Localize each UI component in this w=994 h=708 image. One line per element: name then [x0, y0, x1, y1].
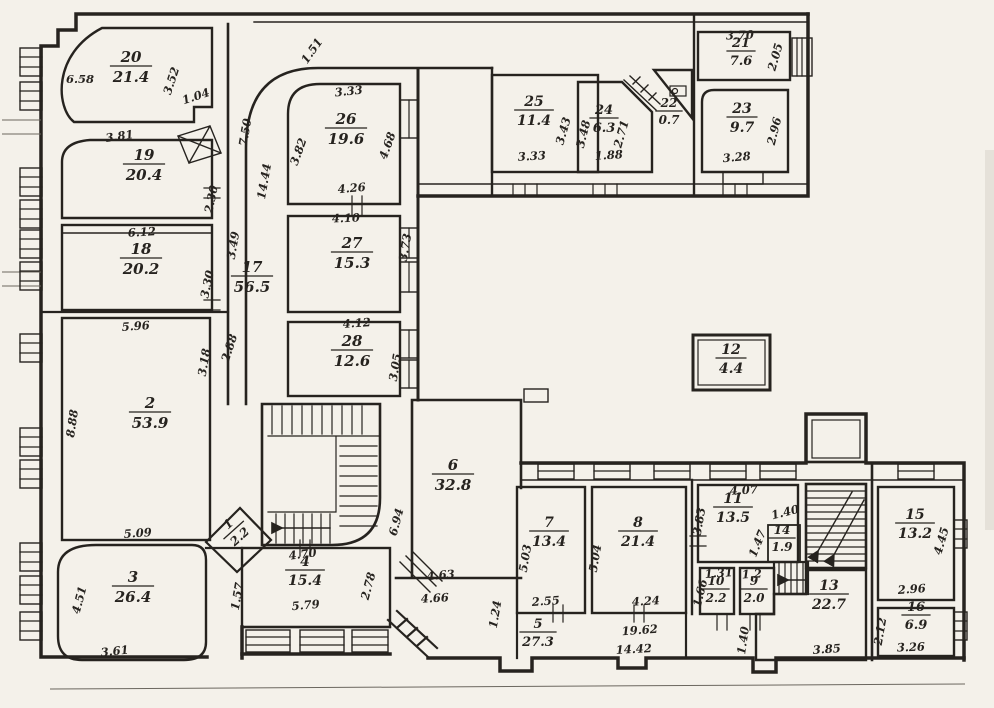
room-number: 7 [544, 515, 554, 531]
dim-label: 2.78 [357, 571, 378, 603]
room-area: 15.4 [288, 573, 322, 589]
window-icon [797, 38, 807, 76]
room-label-7: 713.4 [529, 515, 569, 550]
room-label-16: 166.9 [901, 600, 930, 633]
room-label-19: 1920.4 [123, 146, 165, 184]
dim-label: 2.96 [896, 581, 926, 597]
dim-label: 5.96 [121, 318, 150, 334]
window-icon [20, 91, 42, 101]
dim-label: 4.68 [376, 130, 399, 161]
dim-label: 1.31 [704, 565, 733, 581]
room-area: 56.5 [234, 278, 271, 296]
window-icon [352, 637, 388, 645]
dim-label: 2.05 [764, 42, 785, 74]
window-icon [20, 57, 42, 67]
window-icon [300, 637, 344, 645]
dim-label: 4.07 [729, 482, 758, 497]
room-area: 19.6 [328, 130, 365, 148]
window-icon [20, 585, 42, 595]
room-area: 53.9 [132, 414, 169, 432]
room-area: 9.7 [730, 120, 755, 136]
room-area: 13.4 [532, 534, 566, 550]
window-icon [300, 630, 344, 652]
room-number: 20 [120, 48, 142, 66]
room-area: 13.5 [716, 510, 750, 526]
room-area: 22.7 [811, 597, 846, 613]
room-label-20: 2021.4 [110, 48, 152, 86]
dim-label: 3.82 [287, 136, 310, 167]
window-icon [723, 184, 747, 196]
window-icon [20, 576, 42, 604]
dim-label: 3.49 [224, 230, 243, 260]
dim-label: 2.88 [218, 332, 240, 364]
window-icon [20, 543, 42, 571]
window-icon [20, 239, 42, 249]
window-icon [20, 428, 42, 456]
room-number: 28 [341, 332, 363, 350]
window-icon [20, 177, 42, 187]
window-icon [246, 637, 290, 645]
window-icon [20, 200, 42, 228]
dim-label: 3.43 [553, 116, 574, 147]
room-number: 22 [660, 96, 678, 110]
room-area: 12.6 [334, 352, 371, 370]
window-icon [723, 172, 763, 184]
room-number: 13 [819, 578, 839, 594]
dim-label: 3.70 [726, 28, 754, 43]
dim-label: 4.10 [332, 211, 360, 226]
room-number: 26 [335, 110, 357, 128]
room-number: 3 [128, 568, 138, 586]
room-number: 5 [533, 617, 542, 632]
room-label-26: 2619.6 [325, 110, 367, 148]
room-number: 17 [242, 258, 263, 276]
labels-layer: 2021.41920.41820.21756.5253.9326.412.241… [63, 28, 952, 660]
room-area: 6.9 [905, 618, 928, 633]
window-icon [352, 630, 388, 652]
dim-label: 2.55 [530, 593, 560, 609]
window-icon [20, 437, 42, 447]
room-number: 6 [448, 456, 459, 474]
room-label-25: 2511.4 [514, 94, 554, 129]
windows-layer [20, 38, 967, 652]
room-label-17: 1756.5 [231, 258, 273, 296]
room-area: 1.9 [772, 540, 794, 554]
window-icon [20, 612, 42, 640]
window-icon [20, 343, 42, 353]
dim-label: 1.24 [486, 599, 505, 629]
dim-label: 1.40 [734, 626, 752, 656]
dim-label: 4.24 [631, 593, 660, 608]
dim-label: 4.70 [288, 545, 318, 562]
dim-label: 6.94 [386, 507, 407, 538]
window-icon [593, 184, 617, 196]
dim-label: 4.12 [342, 315, 371, 331]
room-label-8: 821.4 [618, 515, 658, 550]
dim-label: 3.81 [105, 127, 135, 145]
floor-plan-canvas: 2021.41920.41820.21756.5253.9326.412.241… [0, 0, 994, 708]
room-number: 27 [341, 234, 363, 252]
dim-label: 3.30 [197, 269, 217, 299]
dim-label: 1.40 [770, 502, 801, 522]
floor-plan-page: 2021.41920.41820.21756.5253.9326.412.241… [0, 0, 994, 708]
dim-label: 5.79 [291, 597, 320, 613]
dim-label: 3.05 [386, 352, 405, 382]
dim-label: 2.30 [201, 184, 221, 215]
dim-label: 7.50 [236, 117, 255, 147]
room-area: 21.4 [620, 534, 655, 550]
room-number: 16 [907, 600, 925, 615]
room-label-3: 326.4 [112, 568, 154, 606]
dim-label: 3.52 [160, 65, 182, 96]
room-number: 15 [905, 507, 924, 523]
dim-label: 4.66 [420, 590, 449, 605]
room-number: 2 [144, 394, 155, 412]
dim-label: 1.51 [298, 35, 326, 66]
dim-label: 3.61 [100, 643, 129, 660]
room-number: 14 [774, 523, 791, 537]
room-label-6: 632.8 [432, 456, 474, 494]
room-label-18: 1820.2 [120, 240, 162, 278]
room-label-2: 253.9 [129, 394, 171, 432]
room-area: 0.7 [659, 113, 681, 127]
dim-label: 5.03 [516, 543, 535, 573]
room-area: 32.8 [435, 476, 472, 494]
room-area: 27.3 [521, 635, 554, 650]
room-area: 20.4 [125, 166, 163, 184]
room-label-5: 527.3 [519, 617, 556, 650]
window-icon [20, 209, 42, 219]
room-area: 20.2 [122, 260, 160, 278]
dim-label: 1.88 [594, 147, 623, 162]
window-icon [20, 469, 42, 479]
room-area: 13.2 [898, 526, 932, 542]
room-number: 19 [134, 146, 155, 164]
window-icon [20, 230, 42, 258]
room-label-14: 141.9 [768, 523, 795, 554]
dim-label: 5.04 [586, 543, 605, 573]
dim-label: 6.58 [66, 72, 94, 86]
room-area: 11.4 [517, 113, 551, 129]
dim-label: 14.44 [254, 162, 274, 200]
room-area: 15.3 [334, 254, 371, 272]
room-number: 18 [131, 240, 152, 258]
door-opening [717, 614, 727, 630]
dim-label: 3.28 [722, 149, 751, 165]
dim-label: 3.85 [812, 641, 841, 657]
window-icon [20, 82, 42, 110]
room-label-23: 239.7 [726, 101, 757, 136]
dim-label: 3.33 [517, 148, 546, 163]
dim-label: 2.12 [871, 616, 890, 647]
dim-label: 19.62 [621, 622, 658, 638]
room-number: 24 [594, 103, 613, 118]
dim-label: 6.12 [127, 224, 156, 239]
room-area: 7.6 [730, 54, 753, 69]
stair-treads [272, 406, 865, 593]
room-number: 12 [721, 342, 741, 358]
window-icon [20, 334, 42, 362]
dim-label: 3.33 [334, 83, 363, 100]
stair-tread-lines [272, 406, 865, 593]
window-icon [20, 460, 42, 488]
room-label-27: 2715.3 [331, 234, 373, 272]
dim-label: 8.88 [63, 409, 81, 439]
room-area: 6.3 [593, 121, 616, 136]
dim-label: 1.04 [180, 85, 211, 107]
room-area: 26.4 [114, 588, 152, 606]
dim-label: 14.42 [615, 641, 652, 657]
dim-label: 3.48 [573, 119, 593, 150]
window-icon [524, 389, 548, 402]
scan-smudge [985, 150, 994, 530]
room-area: 2.2 [705, 591, 727, 605]
room-label-13: 1322.7 [809, 578, 849, 613]
room-label-15: 1513.2 [895, 507, 935, 542]
room-number: 8 [633, 515, 643, 531]
room-area: 4.4 [719, 361, 743, 377]
window-icon [513, 184, 537, 196]
dim-label: 1.57 [228, 581, 247, 611]
window-icon [20, 621, 42, 631]
room-label-12: 124.4 [715, 342, 746, 377]
dim-label: 4.26 [337, 180, 366, 196]
dim-label: 4.63 [426, 567, 455, 583]
window-icon [20, 168, 42, 196]
room-area: 21.4 [112, 68, 150, 86]
dim-label: 5.09 [123, 525, 152, 541]
room-area: 2.0 [743, 591, 766, 605]
window-icon [246, 630, 290, 652]
room-label-28: 2812.6 [331, 332, 373, 370]
dim-label: 4.45 [931, 526, 952, 557]
room-number: 23 [731, 101, 752, 117]
dim-label: 1.47 [746, 528, 769, 559]
interior-walls [41, 28, 954, 660]
dim-label: 2.96 [764, 116, 785, 148]
dim-label: 3.26 [897, 640, 925, 655]
dim-label: 1.2 [741, 566, 762, 581]
dim-label: 4.51 [69, 585, 90, 616]
window-icon [20, 552, 42, 562]
stairwell [262, 404, 866, 594]
window-icon [20, 48, 42, 76]
room-number: 25 [523, 94, 543, 110]
